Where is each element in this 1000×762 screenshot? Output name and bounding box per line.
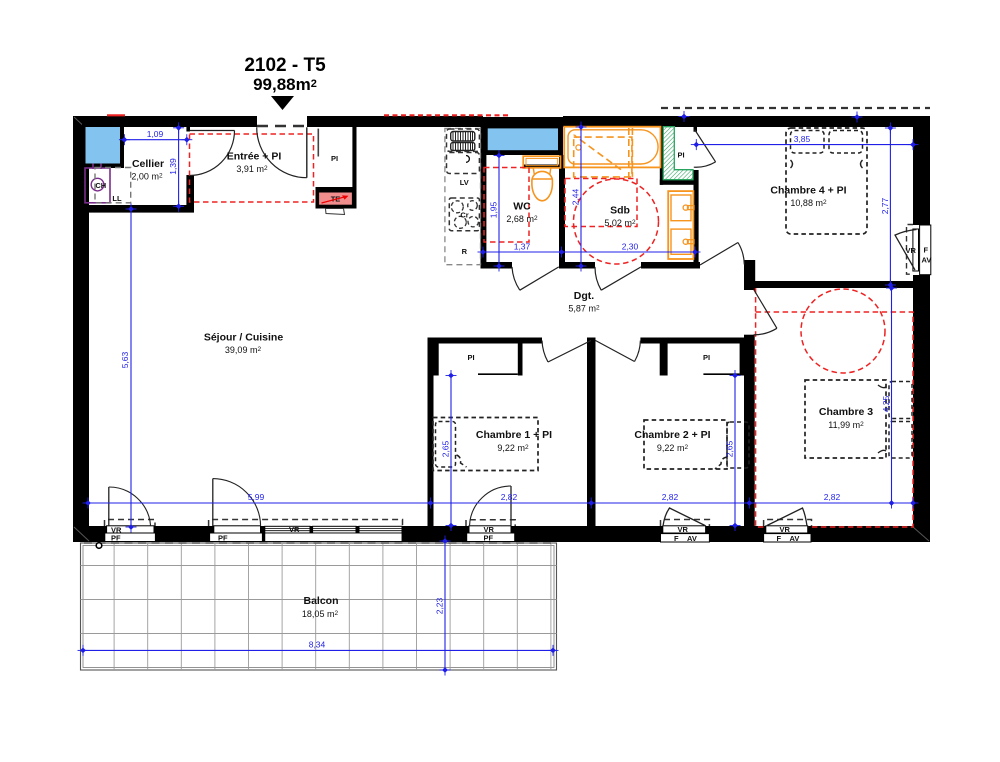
svg-text:10,88 m2: 10,88 m2 xyxy=(790,198,827,208)
svg-text:F: F xyxy=(777,534,782,543)
svg-text:2,00 m2: 2,00 m2 xyxy=(131,172,163,182)
svg-text:PI: PI xyxy=(677,151,684,160)
svg-text:PF: PF xyxy=(218,534,228,543)
svg-text:1,95: 1,95 xyxy=(489,201,499,218)
svg-text:4,25: 4,25 xyxy=(881,395,891,412)
svg-text:2,65: 2,65 xyxy=(441,440,451,457)
svg-text:5,02 m2: 5,02 m2 xyxy=(604,218,636,228)
svg-text:8,34: 8,34 xyxy=(309,640,326,650)
svg-text:9,22 m2: 9,22 m2 xyxy=(657,443,689,453)
svg-text:5,99: 5,99 xyxy=(248,492,265,502)
svg-text:PI: PI xyxy=(467,353,474,362)
svg-text:Cr: Cr xyxy=(460,211,468,220)
svg-text:Entrée + PI: Entrée + PI xyxy=(227,151,282,163)
svg-text:5,63: 5,63 xyxy=(120,351,130,368)
svg-text:CH: CH xyxy=(95,181,106,190)
svg-text:F: F xyxy=(674,534,679,543)
svg-text:2,30: 2,30 xyxy=(622,242,639,252)
svg-text:PI: PI xyxy=(703,353,710,362)
svg-text:2,44: 2,44 xyxy=(571,188,581,205)
svg-text:2,77: 2,77 xyxy=(880,197,890,214)
svg-text:Chambre 3: Chambre 3 xyxy=(819,406,873,418)
svg-text:Balcon: Balcon xyxy=(303,595,338,607)
svg-text:AV: AV xyxy=(922,256,932,265)
svg-text:PF: PF xyxy=(484,534,494,543)
svg-text:11,99 m2: 11,99 m2 xyxy=(828,420,864,430)
svg-text:5,87 m2: 5,87 m2 xyxy=(568,304,600,314)
svg-text:PI: PI xyxy=(331,154,338,163)
svg-text:2,23: 2,23 xyxy=(435,597,445,614)
svg-text:3,85: 3,85 xyxy=(794,134,811,144)
svg-text:VR: VR xyxy=(780,525,791,534)
svg-text:9,22 m2: 9,22 m2 xyxy=(497,443,529,453)
svg-text:2,82: 2,82 xyxy=(824,492,841,502)
svg-text:LV: LV xyxy=(460,178,469,187)
svg-text:2,82: 2,82 xyxy=(662,492,679,502)
svg-text:VR: VR xyxy=(678,525,689,534)
svg-text:LL: LL xyxy=(112,194,122,203)
svg-text:99,88m2: 99,88m2 xyxy=(253,75,317,94)
svg-text:AV: AV xyxy=(790,534,800,543)
svg-text:PF: PF xyxy=(111,534,121,543)
svg-text:1,37: 1,37 xyxy=(514,242,531,252)
svg-text:Dgt.: Dgt. xyxy=(574,290,594,302)
svg-text:F: F xyxy=(924,246,929,255)
svg-text:39,09 m2: 39,09 m2 xyxy=(225,345,262,355)
svg-text:Séjour / Cuisine: Séjour / Cuisine xyxy=(204,332,284,344)
svg-text:VR: VR xyxy=(906,246,917,255)
svg-text:WC: WC xyxy=(513,201,531,213)
svg-text:2102 - T5: 2102 - T5 xyxy=(244,55,326,76)
svg-text:Chambre 1 + PI: Chambre 1 + PI xyxy=(476,429,552,441)
svg-text:2,65: 2,65 xyxy=(725,440,735,457)
svg-text:Chambre 4 + PI: Chambre 4 + PI xyxy=(770,185,846,197)
svg-text:2,68 m2: 2,68 m2 xyxy=(506,214,538,224)
svg-text:3,91 m2: 3,91 m2 xyxy=(236,164,268,174)
svg-text:1,39: 1,39 xyxy=(168,158,178,175)
svg-text:2,82: 2,82 xyxy=(501,492,518,502)
svg-text:Sdb: Sdb xyxy=(610,205,630,217)
svg-text:Cellier: Cellier xyxy=(132,158,164,170)
svg-text:AV: AV xyxy=(687,534,697,543)
svg-text:18,05 m2: 18,05 m2 xyxy=(302,609,339,619)
svg-text:1,09: 1,09 xyxy=(147,129,164,139)
svg-text:Chambre 2 + PI: Chambre 2 + PI xyxy=(634,429,710,441)
svg-text:R: R xyxy=(462,247,468,256)
